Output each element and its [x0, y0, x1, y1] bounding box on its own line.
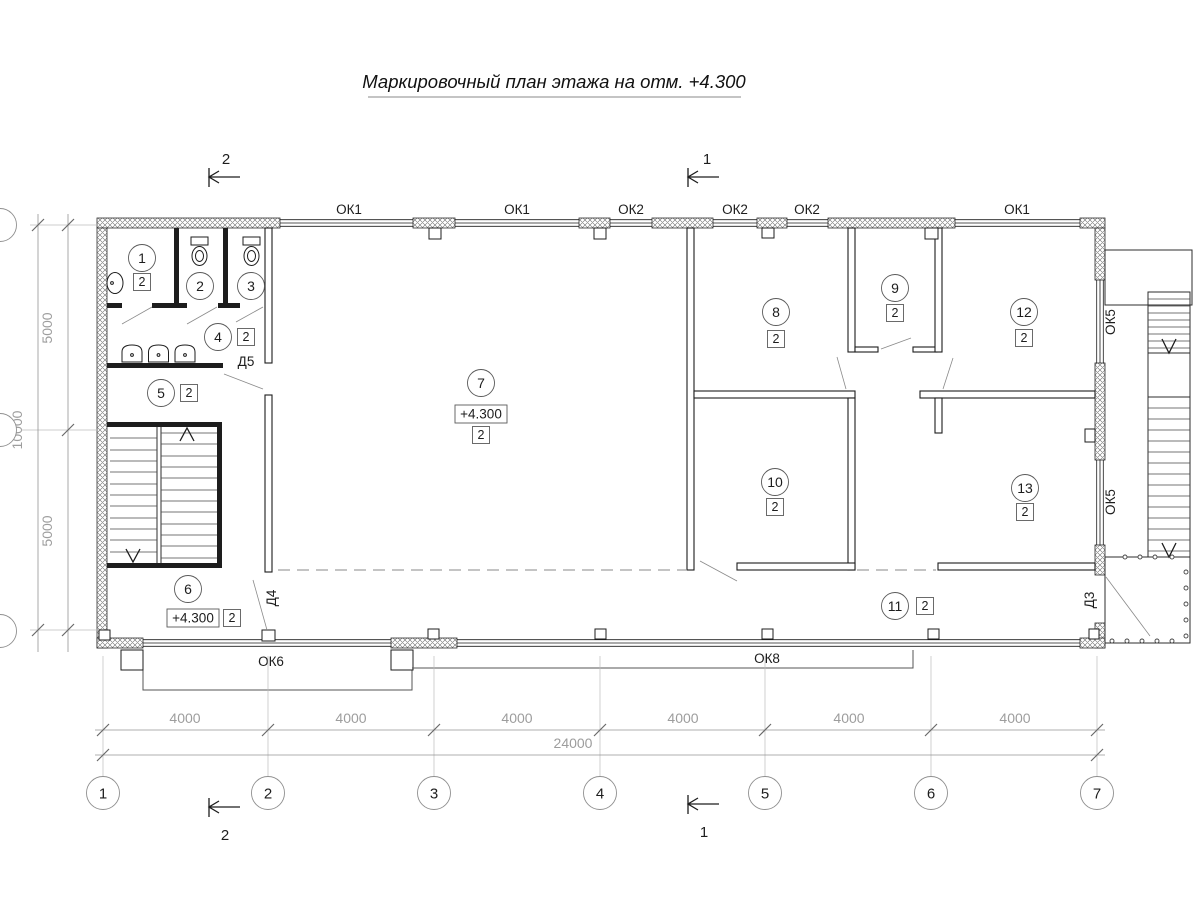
room-number: 2 — [196, 278, 204, 294]
window-label-ok2: ОК2 — [794, 202, 820, 217]
door-jamb-d4 — [262, 630, 275, 641]
wall — [579, 218, 610, 228]
axis-number: 6 — [927, 786, 935, 803]
section-label: 2 — [221, 827, 229, 844]
section-arrow-icon — [209, 168, 240, 187]
door-swing — [837, 357, 846, 389]
door-swing — [943, 358, 953, 389]
room-label-12: 12 2 — [1011, 299, 1038, 347]
section-label: 2 — [222, 151, 230, 168]
room-label-7: 7 +4.300 2 — [455, 370, 507, 444]
stair-treads — [161, 433, 217, 558]
room-type-badge: 2 — [1022, 505, 1029, 519]
wall — [652, 218, 713, 228]
dimensions-bottom: 4000 4000 4000 4000 4000 4000 24000 1 2 … — [87, 656, 1114, 810]
room-label-4: 4 2 — [205, 324, 255, 351]
floor-plan-drawing: Маркировочный план этажа на отм. +4.300 … — [0, 0, 1200, 900]
room-number: 6 — [184, 581, 192, 597]
stair-treads — [110, 438, 157, 552]
axis-number: 5 — [761, 786, 769, 803]
axis-number: 2 — [264, 786, 272, 803]
stair-treads — [1148, 299, 1190, 348]
window-label-ok1: ОК1 — [336, 202, 362, 217]
door-swings — [122, 307, 1150, 636]
window-label-ok1: ОК1 — [1004, 202, 1030, 217]
wall — [828, 218, 955, 228]
room-label-3: 3 — [238, 273, 265, 300]
door-label-d5: Д5 — [238, 354, 255, 369]
wall — [218, 303, 240, 308]
canopy-column — [391, 650, 413, 670]
interior-walls — [265, 228, 1095, 572]
door-swing — [122, 307, 152, 324]
canopy-column — [121, 650, 143, 670]
wall — [848, 398, 855, 570]
axis-number: 1 — [99, 786, 107, 803]
urinal-icon — [107, 273, 123, 294]
room-number: 12 — [1016, 304, 1032, 320]
wall — [935, 228, 942, 352]
wall — [97, 218, 280, 228]
room-label-8: 8 2 — [763, 299, 790, 348]
wall — [737, 563, 855, 570]
wall — [920, 391, 1095, 398]
stair-lower-landing — [1105, 557, 1190, 643]
section-marker-bottom-2: 2 — [209, 798, 240, 844]
door-swing-d3 — [1106, 577, 1150, 636]
room-label-13: 13 2 — [1012, 475, 1039, 521]
wall-right — [1095, 363, 1105, 460]
extension-lines — [22, 225, 97, 630]
dim-half: 5000 — [39, 312, 55, 343]
wall-bottom — [391, 638, 457, 648]
elevation-mark: +4.300 — [460, 407, 502, 422]
dimensions-left: 5000 5000 10000 — [0, 209, 97, 653]
room-label-6: 6 +4.300 2 — [167, 576, 241, 628]
section-label: 1 — [703, 151, 711, 168]
section-marker-bottom-1: 1 — [688, 795, 719, 841]
room-number: 13 — [1017, 480, 1033, 496]
axis-bubbles: 1 2 3 4 5 6 7 — [87, 777, 1114, 810]
section-arrow-icon — [688, 795, 719, 814]
page-title: Маркировочный план этажа на отм. +4.300 — [362, 71, 746, 92]
sink-icon — [149, 345, 169, 362]
stair-stringer — [157, 427, 161, 563]
stair-down-arrow-icon — [1162, 543, 1176, 557]
drawing-title: Маркировочный план этажа на отм. +4.300 — [362, 71, 746, 97]
dim-bay: 4000 — [667, 710, 698, 726]
glazing-line — [143, 640, 1080, 647]
section-marker-top-1: 1 — [688, 151, 719, 187]
pier-tab — [429, 228, 441, 239]
pier-tab — [762, 228, 774, 238]
wall — [938, 563, 1095, 570]
room-label-10: 10 2 — [762, 469, 789, 516]
room-type-badge: 2 — [243, 330, 250, 344]
entrance-canopy — [121, 650, 913, 690]
wall — [152, 303, 187, 308]
room-number: 3 — [247, 278, 255, 294]
axis-number: 4 — [596, 786, 604, 803]
room-number: 11 — [888, 598, 903, 614]
wall — [107, 363, 223, 368]
wall — [413, 218, 455, 228]
wall-left — [97, 228, 107, 648]
wall — [174, 228, 179, 303]
room-number: 5 — [157, 385, 165, 401]
room-type-badge: 2 — [772, 500, 779, 514]
room-number: 10 — [767, 474, 783, 490]
axis-bubble-edge — [0, 615, 17, 648]
room-number: 4 — [214, 329, 222, 345]
railing-posts — [1110, 555, 1188, 643]
stair-right — [1105, 250, 1192, 643]
window-label-ok5: ОК5 — [1103, 309, 1118, 335]
room-number: 9 — [891, 280, 899, 296]
door-label-d3: Д3 — [1082, 592, 1097, 609]
wall-right — [1095, 228, 1105, 280]
room-type-badge: 2 — [773, 332, 780, 346]
section-marker-top-2: 2 — [209, 151, 240, 187]
wall — [107, 303, 122, 308]
section-label: 1 — [700, 824, 708, 841]
stair-well — [1148, 292, 1190, 557]
room-type-badge: 2 — [229, 611, 236, 625]
dim-bay: 4000 — [335, 710, 366, 726]
window-label-ok2: ОК2 — [618, 202, 644, 217]
extension-lines — [103, 656, 1097, 777]
stair-wall — [107, 563, 222, 568]
dim-bay: 4000 — [833, 710, 864, 726]
wall — [855, 347, 878, 352]
pier-tab — [1085, 429, 1095, 442]
stair-wall — [107, 422, 222, 427]
wall-right — [1095, 545, 1105, 575]
room-label-11: 11 2 — [882, 593, 934, 620]
wall — [265, 395, 272, 572]
door-label-d4: Д4 — [264, 589, 279, 606]
door-swing — [881, 338, 911, 349]
room-type-badge: 2 — [922, 599, 929, 613]
room-label-1: 1 2 — [129, 245, 156, 291]
dim-bay: 4000 — [999, 710, 1030, 726]
pier-tab — [594, 228, 606, 239]
dim-total: 24000 — [554, 735, 593, 751]
window-label-ok2: ОК2 — [722, 202, 748, 217]
window-label-ok5: ОК5 — [1103, 489, 1118, 515]
wall — [935, 398, 942, 433]
wall — [757, 218, 787, 228]
door-swing-d5 — [224, 374, 263, 389]
dim-bay: 4000 — [169, 710, 200, 726]
window-label-ok8: ОК8 — [754, 651, 780, 666]
room-label-5: 5 2 — [148, 380, 198, 407]
wall — [687, 228, 694, 570]
window-label-ok1: ОК1 — [504, 202, 530, 217]
column-marker — [428, 629, 439, 639]
toilet-icon — [191, 237, 208, 266]
room-type-badge: 2 — [186, 386, 193, 400]
column-marker — [928, 629, 939, 639]
wall — [265, 228, 272, 363]
stair-up-arrow-icon — [180, 428, 194, 441]
pier-tab — [925, 228, 938, 239]
room-type-badge: 2 — [478, 428, 485, 442]
door-swing — [700, 561, 737, 581]
window-glazing — [143, 220, 1103, 647]
sink-icon — [175, 345, 195, 362]
wall — [1080, 218, 1105, 228]
floor-plan-page: Маркировочный план этажа на отм. +4.300 … — [0, 0, 1200, 900]
room-type-badge: 2 — [139, 275, 146, 289]
room-type-badge: 2 — [1021, 331, 1028, 345]
wall — [848, 228, 855, 352]
stair-wall — [217, 422, 222, 568]
room-number: 8 — [772, 304, 780, 320]
column-marker — [762, 629, 773, 639]
section-arrow-icon — [688, 168, 719, 187]
toilet-icon — [243, 237, 260, 266]
column-marker — [99, 630, 110, 640]
wall — [694, 391, 855, 398]
stair-left — [110, 427, 217, 563]
stair-down-arrow-icon — [126, 549, 140, 562]
sink-icon — [122, 345, 142, 362]
sill-line — [412, 650, 913, 668]
column-marker — [1089, 629, 1099, 639]
room-number: 7 — [477, 375, 485, 391]
stair-landing-lines — [1148, 353, 1190, 397]
room-label-2: 2 — [187, 273, 214, 300]
section-arrow-icon — [209, 798, 240, 817]
dim-bay: 4000 — [501, 710, 532, 726]
stair-treads — [1148, 408, 1190, 551]
dim-half: 5000 — [39, 515, 55, 546]
door-swing — [236, 307, 263, 322]
door-swing — [187, 307, 217, 324]
axis-number: 3 — [430, 786, 438, 803]
wall — [913, 347, 937, 352]
wall — [223, 228, 228, 303]
axis-bubble-edge — [0, 209, 17, 242]
room-type-badge: 2 — [892, 306, 899, 320]
column-marker — [595, 629, 606, 639]
elevation-mark: +4.300 — [172, 611, 214, 626]
axis-number: 7 — [1093, 786, 1101, 803]
window-label-ok6: ОК6 — [258, 654, 284, 669]
room-number: 1 — [138, 250, 146, 266]
room-label-9: 9 2 — [882, 275, 909, 322]
